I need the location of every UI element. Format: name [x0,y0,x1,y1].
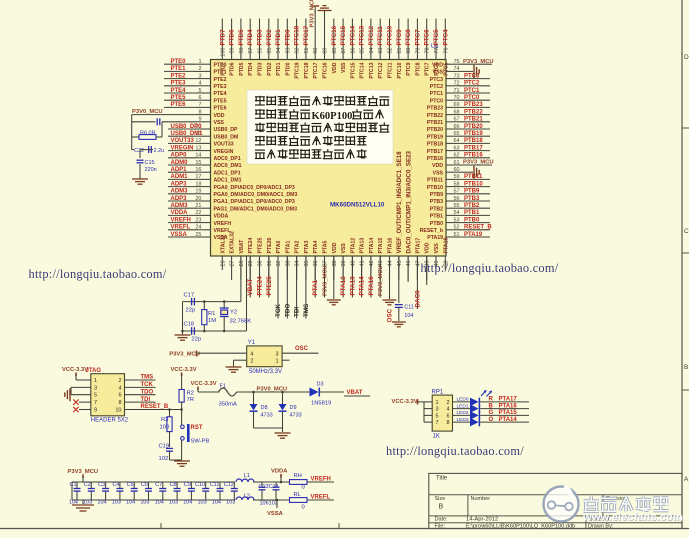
svg-text:PTE25: PTE25 [266,276,273,296]
svg-text:PTD0: PTD0 [284,29,291,46]
svg-text:C: C [684,228,689,235]
svg-text:66: 66 [454,124,460,130]
svg-text:PTE2: PTE2 [214,77,227,83]
svg-text:www.elecfans.com: www.elecfans.com [582,511,683,523]
svg-text:PTE26: PTE26 [267,238,273,254]
svg-text:VREF_OUT/CMP1_IN5/ADC1_SE18: VREF_OUT/CMP1_IN5/ADC1_SE18 [396,151,403,254]
svg-text:58: 58 [454,181,460,187]
svg-text:R6 0R: R6 0R [140,131,156,137]
svg-text:C1: C1 [69,482,76,488]
svg-text:53: 53 [454,217,460,223]
svg-text:PTE6: PTE6 [214,106,227,112]
svg-text:PTA1: PTA1 [285,241,291,254]
svg-text:ADM3: ADM3 [171,203,189,209]
svg-text:PTC7: PTC7 [425,62,431,75]
svg-text:65: 65 [454,131,460,137]
svg-text:VCC-3.3V: VCC-3.3V [171,367,197,373]
svg-text:File:: File: [435,523,446,529]
svg-text:PTD1: PTD1 [276,62,282,75]
svg-text:D: D [684,54,689,61]
svg-text:Drawn By:: Drawn By: [588,523,614,529]
svg-text:PTE24: PTE24 [257,276,264,296]
svg-text:ADM1: ADM1 [171,174,189,180]
svg-text:C8: C8 [170,482,177,488]
svg-text:A: A [684,476,689,483]
svg-text:Title: Title [436,476,448,482]
svg-text:PTC13: PTC13 [369,62,375,78]
svg-text:100: 100 [220,48,226,57]
svg-text:62: 62 [454,153,460,159]
svg-text:PTC18: PTC18 [304,62,310,78]
svg-text:1: 1 [436,400,439,406]
svg-text:VCC-3.3V: VCC-3.3V [62,367,88,373]
svg-text:TCK: TCK [141,382,154,388]
svg-text:70: 70 [454,95,460,101]
svg-text:88: 88 [332,48,338,54]
svg-text:PGA0_DP/ADC0_DP0/ADC1_DP3: PGA0_DP/ADC0_DP0/ADC1_DP3 [214,185,295,191]
svg-text:PTD5: PTD5 [238,29,245,46]
svg-text:PTB2: PTB2 [430,206,443,212]
svg-text:PTC4: PTC4 [442,29,449,46]
svg-text:33: 33 [285,260,291,266]
svg-text:PTC14: PTC14 [349,25,356,45]
svg-text:15: 15 [195,160,201,166]
svg-text:1N5819: 1N5819 [311,401,331,407]
svg-text:C9: C9 [184,482,191,488]
svg-text:VSS: VSS [433,170,444,176]
svg-text:17: 17 [195,174,201,180]
svg-text:ADP3: ADP3 [171,181,188,187]
svg-text:2: 2 [446,400,449,406]
svg-text:ADC1_DM1: ADC1_DM1 [214,178,242,184]
svg-text:72: 72 [454,81,460,87]
svg-text:40: 40 [350,260,356,266]
svg-text:PTD4: PTD4 [248,62,254,75]
svg-text:P3V3_MCU: P3V3_MCU [463,160,494,166]
svg-text:P3V0_MCU: P3V0_MCU [132,109,163,115]
svg-text:99: 99 [230,48,236,54]
svg-text:VREFH: VREFH [214,221,232,227]
svg-text:8: 8 [446,420,449,426]
svg-text:PTB22: PTB22 [464,109,483,115]
svg-text:PTC2: PTC2 [430,84,443,90]
svg-text:PTA12: PTA12 [340,276,347,296]
svg-text:VSSA: VSSA [171,232,188,238]
svg-text:PTB9: PTB9 [464,189,480,195]
svg-text:PTB0: PTB0 [430,221,443,227]
svg-text:22: 22 [195,210,201,216]
svg-text:OSC: OSC [295,346,309,352]
svg-text:RESET_B: RESET_B [141,404,169,410]
svg-text:30: 30 [258,260,264,266]
svg-text:C13C14: C13C14 [259,484,279,490]
svg-text:5: 5 [436,413,439,419]
svg-text:81: 81 [397,48,403,54]
svg-text:41: 41 [360,260,366,266]
svg-text:VSS: VSS [341,62,347,73]
svg-text:ADC0_DM1: ADC0_DM1 [214,163,242,169]
svg-text:PTE24: PTE24 [248,238,254,254]
svg-text:PTB17: PTB17 [427,149,443,155]
svg-text:8: 8 [198,109,201,115]
svg-text:C15: C15 [145,160,155,166]
svg-text:4: 4 [250,352,253,358]
svg-text:C3: C3 [98,482,105,488]
svg-text:L1: L1 [244,473,250,479]
svg-text:3: 3 [94,385,97,391]
svg-text:18: 18 [195,181,201,187]
svg-text:68: 68 [454,109,460,115]
svg-text:B: B [439,504,444,511]
svg-text:61: 61 [454,160,460,166]
svg-text:K60P100: K60P100 [312,111,353,122]
svg-text:PTB1: PTB1 [464,210,480,216]
svg-text:3: 3 [198,73,201,79]
svg-text:96: 96 [258,48,264,54]
svg-text:C11: C11 [404,305,414,311]
svg-text:VDD: VDD [332,242,338,253]
svg-text:60: 60 [454,167,460,173]
svg-text:7: 7 [94,400,97,406]
svg-text:C6: C6 [141,482,148,488]
svg-text:PTB3: PTB3 [430,199,443,205]
svg-text:PTE5: PTE5 [214,98,227,104]
svg-text:85: 85 [360,48,366,54]
svg-text:PTB1: PTB1 [430,214,443,220]
svg-text:VREGIN: VREGIN [214,149,234,155]
svg-text:104: 104 [97,500,106,506]
svg-text:46: 46 [406,260,412,266]
svg-text:6: 6 [198,95,201,101]
svg-text:PTA16: PTA16 [368,276,375,296]
svg-text:B: B [489,403,494,409]
svg-text:7: 7 [198,102,201,108]
svg-text:P3V3_MCU: P3V3_MCU [378,265,384,296]
svg-text:VBAT: VBAT [347,390,363,396]
svg-text:C18: C18 [184,322,195,328]
svg-text:ADP1: ADP1 [171,167,188,173]
svg-text:91: 91 [304,48,310,54]
svg-text:9: 9 [94,408,97,414]
svg-text:19: 19 [195,189,201,195]
svg-text:3: 3 [436,407,439,413]
svg-text:PTC7: PTC7 [414,29,421,46]
svg-text:97: 97 [248,48,254,54]
svg-text:50MHz/3.3V: 50MHz/3.3V [249,369,282,375]
svg-text:PTA15: PTA15 [499,410,518,416]
svg-text:PTC11: PTC11 [377,26,384,46]
svg-text:54: 54 [454,210,460,216]
svg-text:C17: C17 [184,293,195,299]
svg-text:PTB2: PTB2 [464,203,480,209]
svg-text:25: 25 [195,232,201,238]
svg-text:P3V3_MCU: P3V3_MCU [463,59,494,65]
svg-text:7: 7 [436,420,439,426]
svg-text:14: 14 [195,153,201,159]
svg-text:PTD2: PTD2 [267,62,273,75]
svg-text:98: 98 [239,48,245,54]
svg-text:4733: 4733 [290,413,302,419]
svg-text:ADP3: ADP3 [171,196,188,202]
svg-text:VREFH: VREFH [311,477,331,483]
svg-text:ADC1_DP1: ADC1_DP1 [214,170,241,176]
svg-text:C11: C11 [210,482,220,488]
svg-text:5: 5 [94,393,97,399]
svg-text:83: 83 [378,48,384,54]
svg-text:PTA16: PTA16 [499,403,518,409]
svg-text:52: 52 [454,225,460,231]
svg-text:86: 86 [350,48,356,54]
svg-text:7R: 7R [187,397,194,403]
svg-text:77: 77 [434,48,440,54]
svg-text:VREFH: VREFH [171,217,191,223]
svg-text:VOUT33: VOUT33 [171,138,195,144]
svg-text:PTA17: PTA17 [499,397,518,403]
svg-text:Date:: Date: [435,517,449,523]
svg-text:B: B [684,364,688,371]
svg-text:2.2u: 2.2u [154,148,165,154]
svg-text:103: 103 [226,500,235,506]
svg-text:PTD6: PTD6 [230,62,236,75]
svg-text:PTB22: PTB22 [427,113,443,119]
svg-text:PAG1_DM/ADC1_DM0/ADC0_DM3: PAG1_DM/ADC1_DM0/ADC0_DM3 [214,206,298,212]
svg-text:PTC13: PTC13 [359,25,366,45]
svg-text:ADM3: ADM3 [171,189,189,195]
svg-text:TDI: TDI [141,397,151,403]
svg-text:92: 92 [295,48,301,54]
svg-text:PTE4: PTE4 [214,91,227,97]
svg-text:Y2: Y2 [230,310,237,316]
svg-text:PTA12: PTA12 [350,238,356,254]
svg-text:24: 24 [195,225,201,231]
svg-text:20: 20 [195,196,201,202]
svg-text:57: 57 [454,189,460,195]
svg-text:5: 5 [198,88,201,94]
svg-text:PTB20: PTB20 [427,127,443,133]
svg-text:1M: 1M [208,318,216,324]
svg-text:PTA2: PTA2 [295,241,301,254]
svg-text:C12: C12 [224,482,234,488]
svg-text:MK60DN512VLL10: MK60DN512VLL10 [330,202,385,209]
svg-text:23: 23 [195,217,201,223]
svg-text:PTA5: PTA5 [323,241,329,254]
svg-text:95: 95 [267,48,273,54]
svg-text:PTA1: PTA1 [312,279,319,295]
svg-text:4733: 4733 [261,413,273,419]
svg-text:USB0_DM: USB0_DM [214,134,239,140]
svg-text:VDDA: VDDA [271,469,288,475]
svg-text:69: 69 [454,102,460,108]
svg-text:Y1: Y1 [248,340,256,346]
svg-text:PGA0_DM/ADC0_DM0/ADC1_DM3: PGA0_DM/ADC0_DM0/ADC1_DM3 [214,192,298,198]
svg-text:PTE0: PTE0 [171,59,187,65]
svg-text:USB0_DP: USB0_DP [214,127,238,133]
svg-text:103: 103 [112,500,121,506]
svg-text:TDI: TDI [294,307,301,317]
svg-text:34: 34 [295,260,301,266]
svg-text:HEADER 5X2: HEADER 5X2 [91,418,129,424]
svg-text:C4: C4 [112,482,119,488]
svg-text:C5: C5 [127,482,134,488]
svg-text:PTC5: PTC5 [433,29,440,46]
svg-text:32: 32 [276,260,282,266]
svg-text:35: 35 [304,260,310,266]
svg-text:104: 104 [126,500,135,506]
svg-text:PTD0: PTD0 [285,62,291,75]
svg-text:PTB18: PTB18 [464,138,483,144]
svg-text:VDD: VDD [425,242,431,253]
svg-text:PTB9: PTB9 [430,192,443,198]
svg-text:PTB19: PTB19 [427,134,443,140]
svg-text:104: 104 [212,500,221,506]
svg-text:D3: D3 [317,382,324,388]
svg-text:103: 103 [140,500,149,506]
svg-text:32.768K: 32.768K [230,319,252,325]
svg-text:13: 13 [195,145,201,151]
svg-text:PTD3: PTD3 [257,29,264,46]
svg-text:VDDA: VDDA [171,210,189,216]
svg-text:14-Apr-2012: 14-Apr-2012 [466,517,498,523]
svg-text:78: 78 [425,48,431,54]
svg-text:VOUT33: VOUT33 [214,142,234,148]
svg-text:http://longqiu.taobao.com/: http://longqiu.taobao.com/ [29,267,167,281]
svg-text:PTB16: PTB16 [464,153,483,159]
svg-text:Number: Number [471,496,491,502]
svg-text:10: 10 [115,408,121,414]
svg-text:RST: RST [191,425,203,431]
svg-text:PTE3: PTE3 [171,81,187,87]
svg-text:PTD7: PTD7 [219,29,226,46]
svg-text:PTC3: PTC3 [430,77,443,83]
svg-text:P3V3_MCU: P3V3_MCU [310,0,316,28]
svg-text:79: 79 [415,48,421,54]
svg-text:45: 45 [397,260,403,266]
svg-text:TCK: TCK [275,304,282,317]
svg-text:PTC2: PTC2 [464,81,480,87]
svg-text:PTA14: PTA14 [499,417,518,423]
svg-text:PTA13: PTA13 [349,276,356,296]
svg-text:82: 82 [388,48,394,54]
svg-text:VREFL: VREFL [171,225,191,231]
svg-text:PTA14: PTA14 [359,276,366,296]
svg-text:PTC8: PTC8 [415,62,421,75]
svg-text:PTC12: PTC12 [378,62,384,78]
svg-text:ADC0_DP1: ADC0_DP1 [214,156,241,162]
svg-text:PTE3: PTE3 [214,84,227,90]
svg-text:1K: 1K [433,434,440,440]
svg-text:220n: 220n [145,167,157,173]
svg-text:RESET_B: RESET_B [464,225,492,231]
svg-text:29: 29 [248,260,254,266]
svg-text:PTB19: PTB19 [464,131,483,137]
svg-text:PTC1: PTC1 [430,91,443,97]
svg-text:PTC10: PTC10 [397,62,403,78]
svg-text:31: 31 [267,260,273,266]
svg-text:PTC0: PTC0 [464,95,480,101]
svg-text:PTB3: PTB3 [464,196,480,202]
svg-text:21: 21 [195,203,201,209]
svg-text:TDO: TDO [284,304,291,317]
svg-text:XTAL32: XTAL32 [220,234,226,253]
svg-text:PTD5: PTD5 [239,62,245,75]
svg-text:36: 36 [313,260,319,266]
svg-text:75: 75 [454,59,460,65]
svg-text:PTB18: PTB18 [427,142,443,148]
svg-text:PTE1: PTE1 [171,66,187,72]
svg-text:22p: 22p [192,337,202,343]
svg-text:PTC3: PTC3 [464,73,480,79]
svg-text:TMS: TMS [303,304,310,317]
svg-text:VREFL: VREFL [311,495,331,501]
svg-text:PTB20: PTB20 [464,124,483,130]
svg-text:38: 38 [332,260,338,266]
svg-text:PTE6: PTE6 [171,102,187,108]
svg-text:VSS: VSS [434,243,440,254]
svg-text:103: 103 [169,500,178,506]
svg-text:350mA: 350mA [219,402,238,408]
svg-text:PTD2: PTD2 [266,29,273,46]
svg-text:8: 8 [118,400,121,406]
svg-text:94: 94 [276,48,282,54]
svg-text:JTAG: JTAG [86,368,102,374]
svg-text:44: 44 [388,260,394,266]
svg-text:104: 104 [183,500,192,506]
svg-text:PTE25: PTE25 [258,238,264,254]
svg-text:4: 4 [118,385,121,391]
svg-text:C19: C19 [159,444,170,450]
svg-text:67: 67 [454,117,460,123]
svg-text:102: 102 [159,456,169,462]
svg-text:PTD6: PTD6 [229,29,236,46]
svg-text:16: 16 [195,167,201,173]
svg-text:6: 6 [118,393,121,399]
svg-text:1: 1 [94,378,97,384]
svg-text:106102: 106102 [260,501,278,507]
svg-text:R1: R1 [208,311,215,317]
svg-text:PTC10: PTC10 [387,25,394,45]
svg-text:76: 76 [443,48,449,54]
svg-text:PTC19: PTC19 [295,62,301,78]
svg-text:PTC6: PTC6 [424,29,431,46]
svg-text:C10: C10 [195,482,205,488]
svg-text:4: 4 [446,407,449,413]
svg-text:PTC8: PTC8 [405,29,412,46]
svg-text:ADP0: ADP0 [171,153,188,159]
svg-text:PTC1: PTC1 [464,88,480,94]
svg-text:28: 28 [239,260,245,266]
svg-text:DAC0: DAC0 [414,290,421,308]
svg-text:VDDA: VDDA [214,214,229,220]
svg-text:26: 26 [220,260,226,266]
svg-text:PTC16: PTC16 [331,25,338,45]
svg-text:PTC9: PTC9 [396,29,403,46]
svg-text:RH: RH [294,473,302,479]
svg-text:D9: D9 [290,405,297,411]
svg-text:EXTAL32: EXTAL32 [230,231,236,254]
svg-text:D8: D8 [261,405,268,411]
svg-text:VBAT: VBAT [247,279,254,296]
svg-text:O: O [489,417,494,423]
svg-text:PTA19: PTA19 [464,232,483,238]
svg-text:2: 2 [118,378,121,384]
svg-text:PTC0: PTC0 [430,98,443,104]
svg-text:PTB23: PTB23 [427,106,443,112]
svg-text:http://longqiu.taobao.com/: http://longqiu.taobao.com/ [386,444,524,458]
svg-text:PTA18: PTA18 [443,238,449,254]
svg-text:G: G [489,410,494,416]
svg-text:PTE2: PTE2 [171,73,187,79]
svg-text:PTC18: PTC18 [294,25,301,45]
